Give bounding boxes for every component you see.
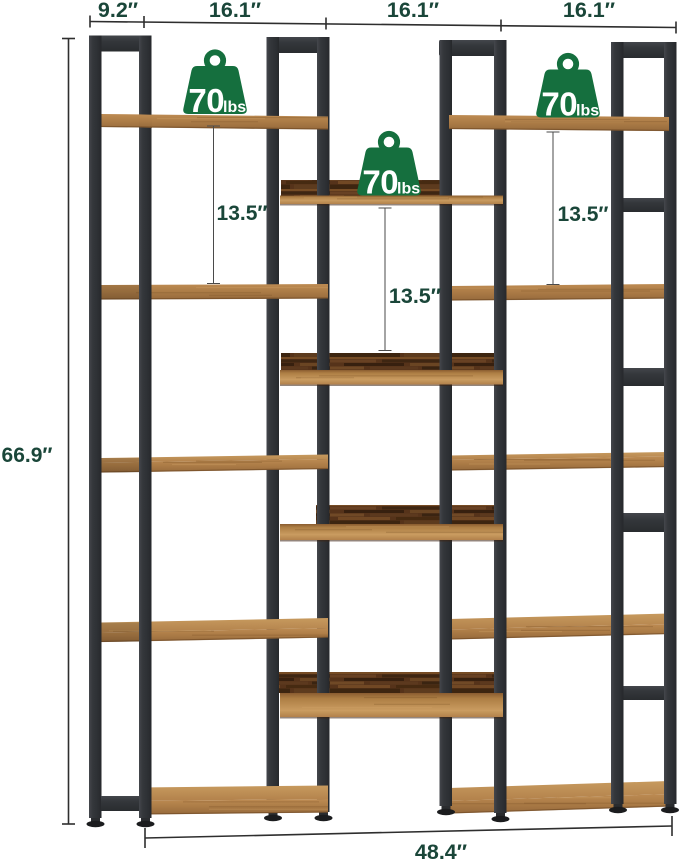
svg-text:lbs: lbs — [223, 99, 246, 116]
svg-text:66.9″: 66.9″ — [2, 444, 53, 467]
svg-text:70: 70 — [188, 82, 224, 119]
svg-text:9.2″: 9.2″ — [98, 0, 138, 22]
svg-text:13.5″: 13.5″ — [217, 202, 268, 225]
svg-text:16.1″: 16.1″ — [563, 0, 615, 22]
svg-text:70: 70 — [541, 86, 577, 123]
svg-text:lbs: lbs — [397, 181, 420, 198]
svg-text:16.1″: 16.1″ — [209, 0, 261, 22]
svg-text:70: 70 — [362, 164, 398, 201]
svg-text:13.5″: 13.5″ — [558, 203, 609, 226]
svg-text:13.5″: 13.5″ — [389, 284, 441, 308]
svg-text:lbs: lbs — [576, 103, 599, 120]
svg-text:16.1″: 16.1″ — [387, 0, 439, 22]
svg-text:48.4″: 48.4″ — [415, 840, 467, 863]
